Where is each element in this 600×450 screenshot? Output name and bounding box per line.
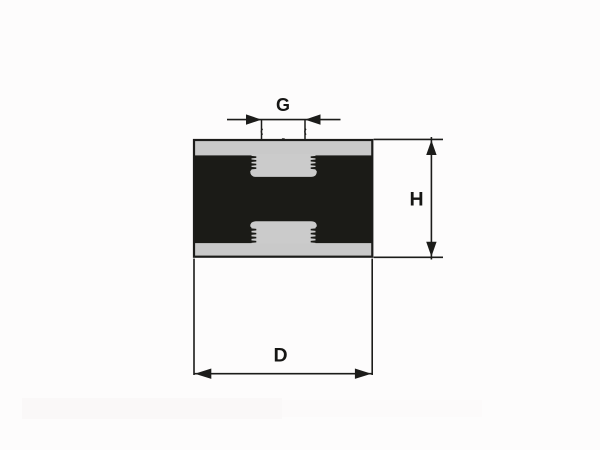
svg-text:D: D [273,344,287,366]
svg-text:G: G [276,95,290,115]
svg-text:H: H [409,188,423,210]
